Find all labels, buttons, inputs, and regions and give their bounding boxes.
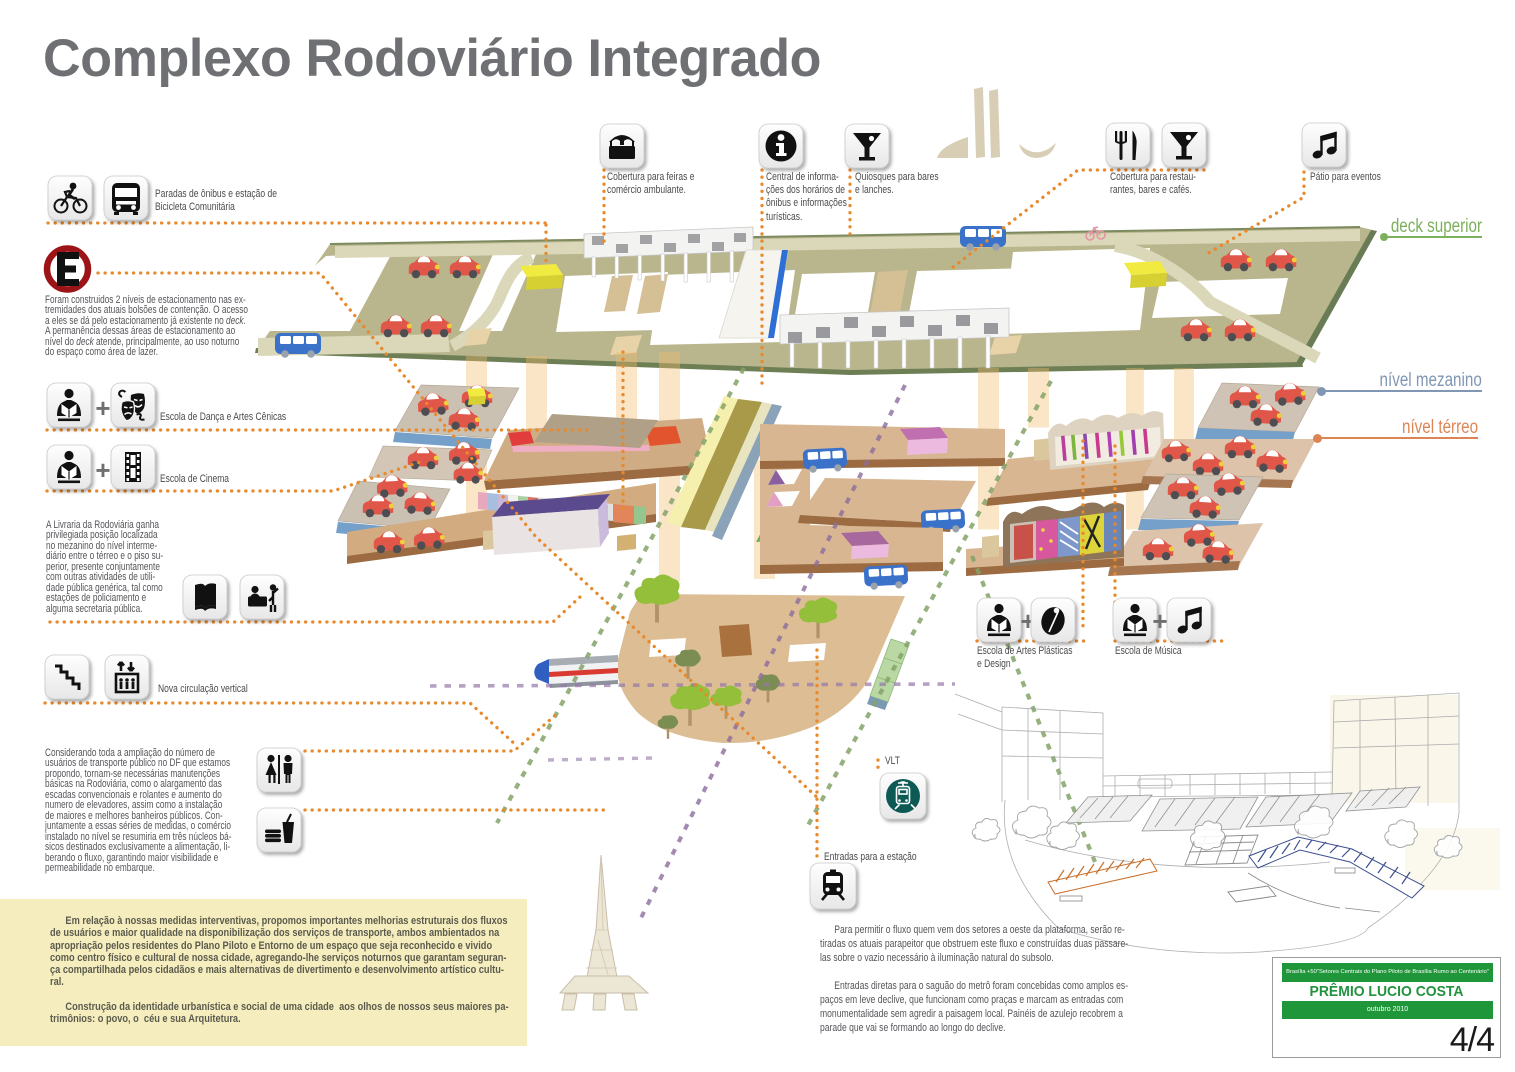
svg-text:+: + xyxy=(95,455,110,485)
svg-text:+: + xyxy=(95,393,110,423)
svg-text:+: + xyxy=(1152,606,1167,636)
